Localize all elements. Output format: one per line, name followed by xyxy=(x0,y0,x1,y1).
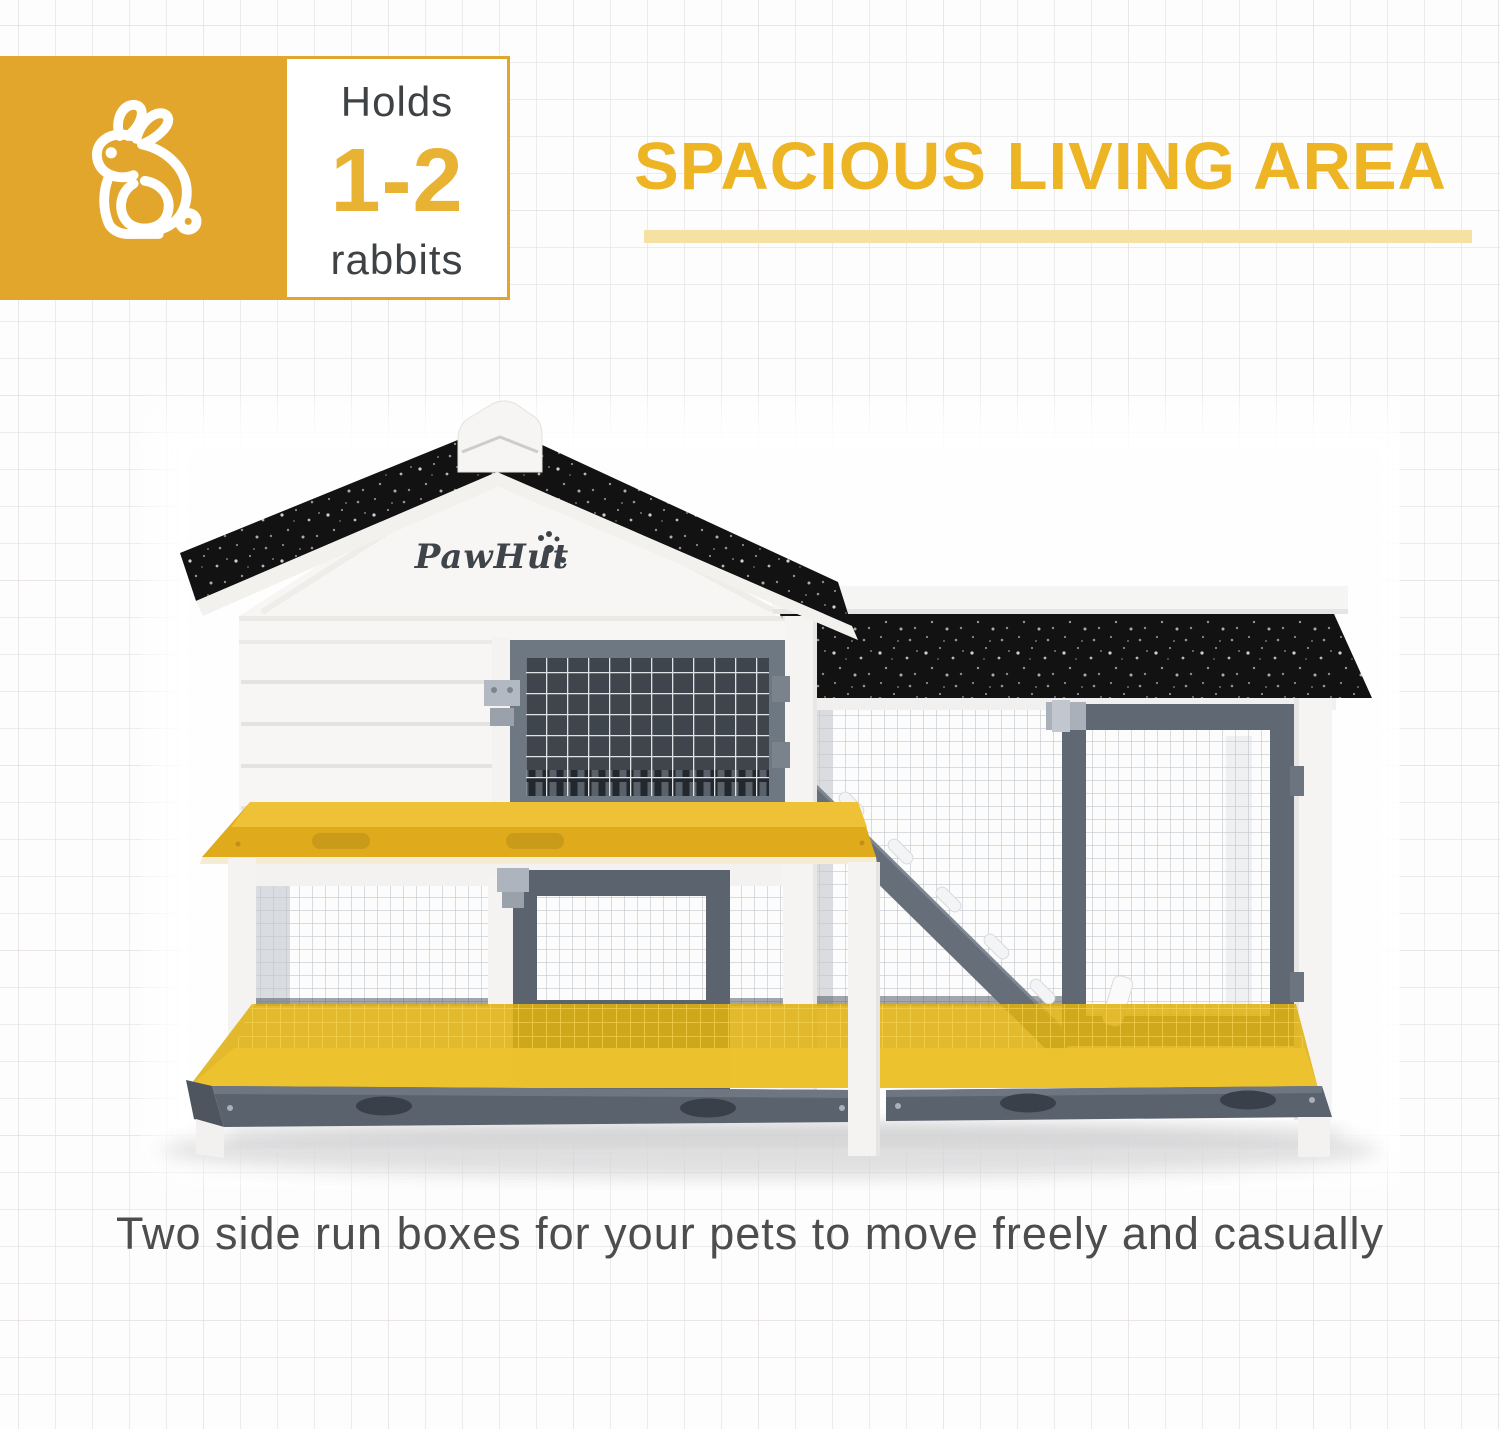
section-heading: SPACIOUS LIVING AREA xyxy=(634,133,1494,243)
product-infographic: Holds 1-2 rabbits SPACIOUS LIVING AREA xyxy=(0,0,1500,1429)
badge-unit-label: rabbits xyxy=(330,239,463,281)
door-lock xyxy=(484,680,520,706)
run-door xyxy=(1046,700,1304,1046)
tray-handle xyxy=(680,1099,736,1118)
capacity-badge: Holds 1-2 rabbits xyxy=(284,56,510,300)
badge-capacity-value: 1-2 xyxy=(330,136,463,226)
tray-handle xyxy=(506,833,564,849)
door-hinge xyxy=(772,742,790,768)
capacity-badge-icon-box xyxy=(0,56,284,300)
brand-logo-text: PawHut xyxy=(414,537,570,577)
tray-handle xyxy=(356,1097,412,1116)
upper-floor-highlight xyxy=(200,802,877,864)
product-image: PawHut xyxy=(140,390,1400,1190)
hutch-upper-door xyxy=(484,640,790,814)
run-floor-highlight xyxy=(188,1004,1318,1088)
tray-handle xyxy=(1220,1091,1276,1110)
door-hinge xyxy=(772,676,790,702)
tray-handle xyxy=(1000,1094,1056,1113)
caption-text: Two side run boxes for your pets to move… xyxy=(0,1208,1500,1260)
run-roof xyxy=(780,614,1372,698)
litter-tray-right xyxy=(886,1086,1332,1121)
door-hinge xyxy=(1290,766,1304,796)
tray-handle xyxy=(312,833,370,849)
heading-underline xyxy=(644,230,1472,243)
page-title: SPACIOUS LIVING AREA xyxy=(634,133,1494,200)
badge-holds-label: Holds xyxy=(341,81,453,123)
door-hinge xyxy=(1290,972,1304,1002)
door-lock xyxy=(497,868,529,892)
rabbit-icon xyxy=(58,94,226,262)
brand-logo: PawHut xyxy=(414,531,570,577)
